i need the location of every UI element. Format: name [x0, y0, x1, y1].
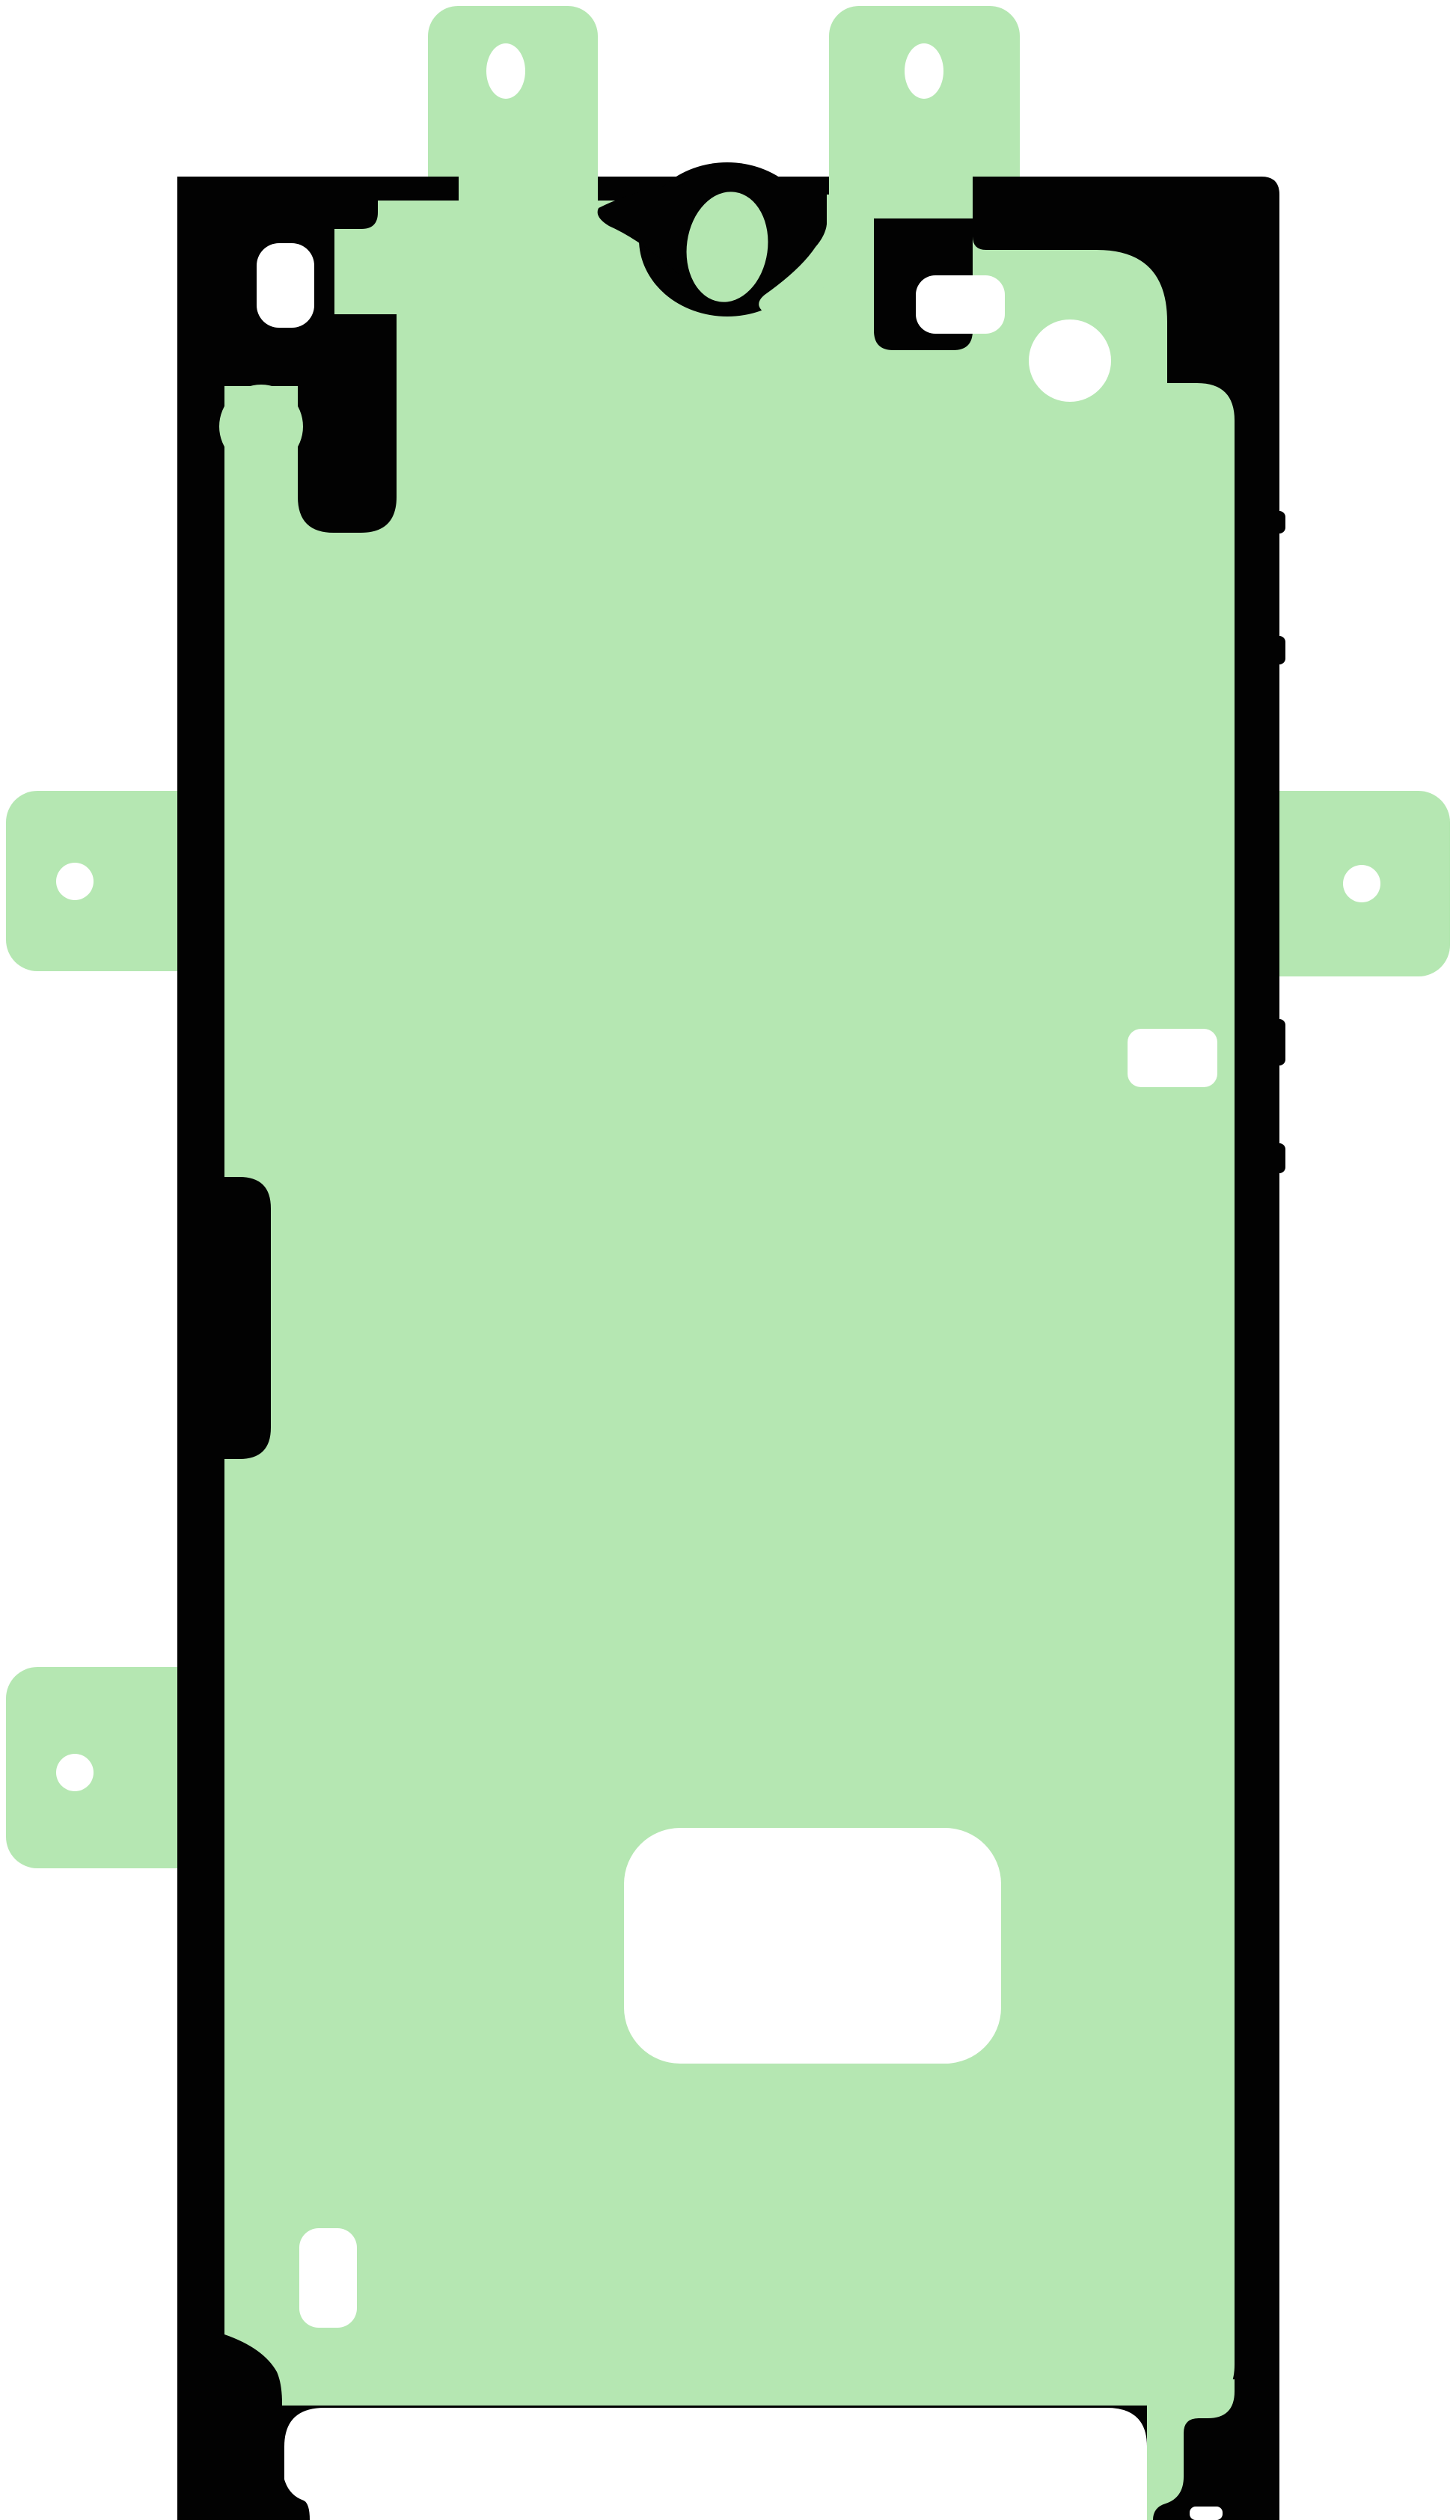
edge-nub: [1272, 1019, 1285, 1065]
sensor-rect-cutout: [916, 275, 1005, 334]
module-extension-bar: [298, 314, 397, 533]
tab-hole: [56, 863, 94, 900]
tab-hole: [486, 43, 525, 99]
bottom-edge-notch: [1190, 2507, 1223, 2520]
tab-hole: [1343, 865, 1380, 902]
product-image-stage: [0, 0, 1456, 2520]
adhesive-sticker-illustration: [0, 0, 1456, 2520]
side-button-cutout: [1128, 1029, 1217, 1087]
sensor-slot-cutout: [257, 243, 314, 328]
sensor-circle-cutout: [1029, 319, 1111, 402]
left-border-bulge: [177, 1177, 271, 1459]
tab-hole: [56, 1754, 94, 1791]
adhesive-area: [224, 201, 1235, 2406]
edge-nub: [1272, 511, 1285, 533]
tab-hole: [905, 43, 943, 99]
lower-left-cutout: [299, 2228, 357, 2328]
port-cutout: [624, 1828, 1001, 2064]
edge-nub: [1272, 636, 1285, 664]
bottom-opening: [284, 2408, 1147, 2520]
edge-nub: [1272, 1143, 1285, 1173]
top-left-tab-channel: [459, 168, 598, 204]
module-corner-bump: [219, 385, 303, 468]
